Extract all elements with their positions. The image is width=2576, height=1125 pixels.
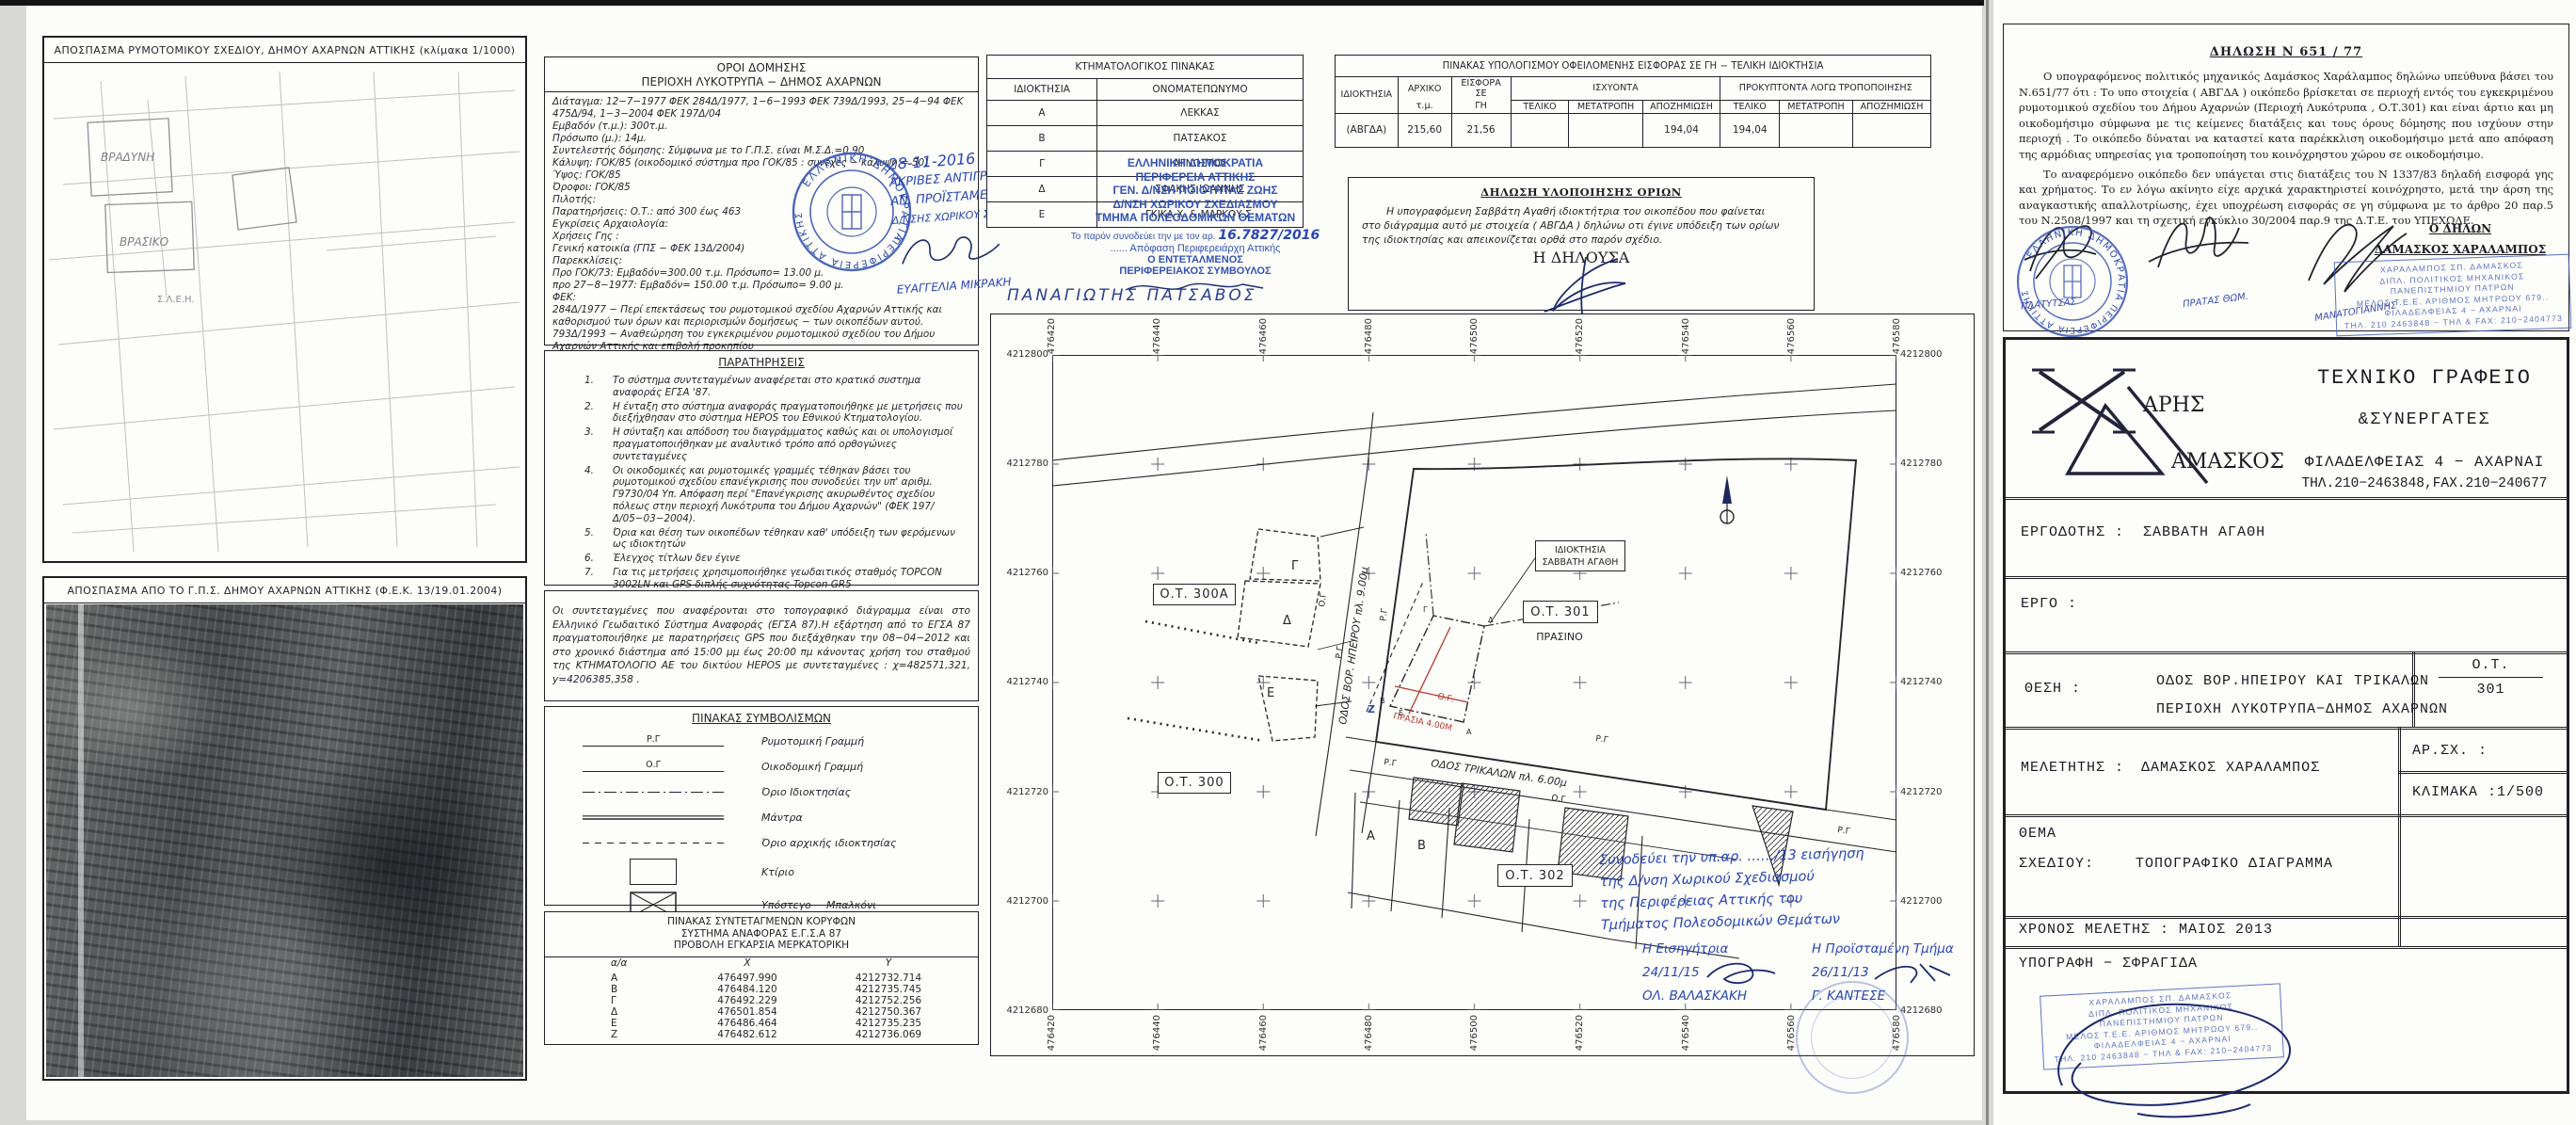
legend-og-tag: Ο.Γ bbox=[646, 760, 661, 770]
note-signature-left: Η Εισηγήτρια 24/11/15 ΟΛ. ΒΑΛΑΣΚΑΚΗ bbox=[1642, 941, 1781, 1004]
legend-label: Υπόστεγο − Μπαλκόνι bbox=[761, 899, 876, 911]
paratirisi-item: 4. Οι οικοδομικές και ρυμοτομικές γραμμέ… bbox=[584, 465, 968, 525]
divider bbox=[2006, 576, 2567, 579]
paratiriseis-box: ΠΑΡΑΤΗΡΗΣΕΙΣ 1. Το σύστημα συντεταγμένων… bbox=[544, 350, 979, 586]
xronos-row: ΧΡΟΝΟΣ ΜΕΛΕΤΗΣ : ΜΑΙΟΣ 2013 bbox=[2019, 922, 2273, 938]
legend-label: Ρυμοτομική Γραμμή bbox=[761, 735, 864, 747]
region-l2: ΠΕΡΙΦΕΡΕΙΑ ΑΤΤΙΚΗΣ bbox=[1049, 170, 1341, 185]
eisfora-h-gi: ΓΗ bbox=[1451, 100, 1511, 113]
oroi-line: 284Δ/1977 − Περί επεκτάσεως του ρυμοτομι… bbox=[552, 304, 972, 329]
dilousa-signature bbox=[1528, 251, 1650, 317]
dilosi-orion-p3: της ιδιοκτησίας και απεικονίζεται ορθά σ… bbox=[1362, 233, 1800, 247]
note-name1: ΟΛ. ΒΑΛΑΣΚΑΚΗ bbox=[1642, 988, 1781, 1004]
thema-label: ΘΕΜΑ bbox=[2019, 826, 2056, 842]
map-excerpt-gps: ΑΠΟΣΠΑΣΜΑ ΑΠΟ ΤΟ Γ.Π.Σ. ΔΗΜΟΥ ΑΧΑΡΝΩΝ ΑΤ… bbox=[42, 576, 527, 1081]
corner-beta: Β bbox=[1380, 697, 1385, 705]
ot300-label: Ο.Τ. 300 bbox=[1158, 772, 1231, 794]
region-l1: ΕΛΛΗΝΙΚΗ ΔΗΜΟΚΡΑΤΙΑ bbox=[1049, 156, 1341, 170]
dilosi-orion-p2: στο διάγραμμα αυτό με στοιχεία ( ΑΒΓΔΑ )… bbox=[1362, 218, 1800, 233]
region-approval-block: ΕΛΛΗΝΙΚΗ ΔΗΜΟΚΡΑΤΙΑ ΠΕΡΙΦΕΡΕΙΑ ΑΤΤΙΚΗΣ Γ… bbox=[1049, 156, 1341, 302]
corner-epsilon: Ε bbox=[1399, 709, 1403, 717]
eisfora-h-apozimiosi1: ΑΠΟΖΗΜΙΩΣΗ bbox=[1642, 100, 1720, 113]
ot301-label: Ο.Τ. 301 bbox=[1523, 601, 1598, 623]
legend-title: ΠΙΝΑΚΑΣ ΣΥΜΒΟΛΙΣΜΩΝ bbox=[545, 712, 978, 725]
rg-label: Ρ.Γ bbox=[1335, 646, 1346, 660]
note-date2: 26/11/13 bbox=[1812, 965, 1869, 980]
gps-note-text: Οι συντεταγμένες που αναφέρονται στο τοπ… bbox=[552, 604, 970, 687]
eisfora-h-arxiko: ΑΡΧΙΚΟ bbox=[1398, 77, 1451, 101]
paratiriseis-list: 1. Το σύστημα συντεταγμένων αναφέρεται σ… bbox=[584, 375, 968, 591]
eisfora-h-metatropi1: ΜΕΤΑΤΡΟΠΗ bbox=[1569, 100, 1642, 113]
office-line1: ΤΕΧΝΙΚΟ ΓΡΑΦΕΙΟ bbox=[2288, 366, 2561, 390]
office-logo: ΑΡΗΣ ΑΜΑΣΚΟΣ bbox=[2023, 359, 2305, 490]
dashed-line-symbol bbox=[583, 843, 724, 844]
paratirisi-item: 2. Η ένταξη στο σύστημα αναφοράς πραγματ… bbox=[584, 401, 968, 426]
region-l4: Δ/ΝΣΗ ΧΩΡΙΚΟΥ ΣΧΕΔΙΑΣΜΟΥ bbox=[1049, 198, 1341, 212]
rymotomiki-line-symbol bbox=[583, 746, 724, 748]
thesi-line2: ΠΕΡΙΟΧΗ ΛΥΚΟΤΡΥΠΑ−ΔΗΜΟΣ ΑΧΑΡΝΩΝ bbox=[2156, 696, 2448, 724]
ypografi-row: ΥΠΟΓΡΑΦΗ − ΣΦΡΑΓΙΔΑ bbox=[2019, 956, 2198, 972]
building-symbol bbox=[630, 859, 677, 885]
rg-label: Ρ.Γ bbox=[1837, 826, 1851, 837]
coords-rows: Α 476497.990 4212732.714 Β 476484.120 42… bbox=[611, 972, 978, 1040]
coords-title2: ΣΥΣΤΗΜΑ ΑΝΑΦΟΡΑΣ Ε.Γ.Σ.Α 87 bbox=[545, 928, 978, 940]
office-line2: &ΣΥΝΕΡΓΑΤΕΣ bbox=[2288, 410, 2561, 429]
owner-label-line2: ΣΑΒΒΑΤΗ ΑΓΑΘΗ bbox=[1536, 556, 1624, 569]
eisfora-h-teliko2: ΤΕΛΙΚΟ bbox=[1720, 100, 1779, 113]
vdivider-arsx bbox=[2398, 771, 2569, 774]
eisfora-h-prokyptonta: ΠΡΟΚΥΠΤΟΝΤΑ ΛΟΓΩ ΤΡΟΠΟΠΟΙΗΣΗΣ bbox=[1720, 77, 1931, 101]
legend-row-orio: Όριο Ιδιοκτησίας bbox=[545, 779, 978, 805]
legend-label: Οικοδομική Γραμμή bbox=[761, 761, 863, 773]
eisfora-h-eisfora: ΕΙΣΦΟΡΑ ΣΕ bbox=[1451, 77, 1511, 101]
gps-note-box: Οι συντεταγμένες που αναφέρονται στο τοπ… bbox=[544, 590, 979, 701]
oroi-subtitle: ΠΕΡΙΟΧΗ ΛΥΚΟΤΡΥΠΑ − ΔΗΜΟΣ ΑΧΑΡΝΩΝ bbox=[545, 75, 978, 89]
plot-handwritten-note: Συνοδεύει την υπ.αρ. ……/13 εισήγηση της … bbox=[1599, 841, 1977, 937]
signature-ellipse bbox=[2024, 972, 2326, 1123]
dashdot-line-symbol bbox=[583, 792, 724, 793]
note-role2: Η Προϊσταμένη Τμήμα bbox=[1812, 941, 1956, 956]
building-1 bbox=[1409, 778, 1464, 826]
eisfora-h-teliko1: ΤΕΛΙΚΟ bbox=[1511, 100, 1569, 113]
arsx-cell: ΑΡ.ΣΧ. : bbox=[2412, 743, 2488, 759]
region-l3: ΓΕΝ. Δ/ΝΣΗ ΠΟΙΟΤΗΤΑΣ ΖΩΗΣ bbox=[1049, 184, 1341, 198]
coords-title1: ΠΙΝΑΚΑΣ ΣΥΝΤΕΤΑΓΜΕΝΩΝ ΚΟΡΥΦΩΝ bbox=[545, 916, 978, 928]
dilosi651-round-stamp: ΕΛΛΗΝΙΚΗ ΔΗΜΟΚΡΑΤΙΑ ΠΕΡΙΦΕΡΕΙΑ ΑΤΤΙΚΗΣ bbox=[2011, 220, 2134, 343]
eisfora-title: ΠΙΝΑΚΑΣ ΥΠΟΛΟΓΙΣΜΟΥ ΟΦΕΙΛΟΜΕΝΗΣ ΕΙΣΦΟΡΑΣ… bbox=[1336, 56, 1931, 77]
legend-row-rg: Ρ.Γ Ρυμοτομική Γραμμή bbox=[545, 729, 978, 754]
meletitis-value: ΔΑΜΑΣΚΟΣ ΧΑΡΑΛΑΜΠΟΣ bbox=[2141, 760, 2320, 776]
owner-label-box: ΙΔΙΟΚΤΗΣΙΑ ΣΑΒΒΑΤΗ ΑΓΑΘΗ bbox=[1535, 540, 1625, 571]
dilosi651-box: ΔΗΛΩΣΗ Ν 651 / 77 Ο υπογραφόμενος πολιτι… bbox=[2003, 24, 2569, 331]
oroi-title: ΟΡΟΙ ΔΟΜΗΣΗΣ bbox=[545, 61, 978, 75]
rg-label: Ρ.Γ bbox=[1384, 758, 1398, 769]
legend-row-og: Ο.Γ Οικοδομική Γραμμή bbox=[545, 754, 978, 779]
coords-row: Γ 476492.229 4212752.256 bbox=[611, 995, 978, 1006]
og-label: Ο.Γ bbox=[1318, 592, 1329, 607]
divider bbox=[2006, 916, 2567, 919]
map1-label-a: ΒΡΑΔΥΝΗ bbox=[101, 151, 154, 164]
legend-label: Μάντρα bbox=[761, 812, 803, 824]
rg-label: Ρ.Γ bbox=[1595, 734, 1609, 746]
ot-cell-label: Ο.Τ. bbox=[2412, 651, 2569, 673]
paratiriseis-title: ΠΑΡΑΤΗΡΗΣΕΙΣ bbox=[545, 356, 978, 369]
copy-note-signature bbox=[892, 223, 1008, 274]
ergo-label: ΕΡΓΟ : bbox=[2021, 596, 2077, 612]
map2-title: ΑΠΟΣΠΑΣΜΑ ΑΠΟ ΤΟ Γ.Π.Σ. ΔΗΜΟΥ ΑΧΑΡΝΩΝ ΑΤ… bbox=[44, 578, 525, 603]
ktima-row: ΑΛΕΚΚΑΣ bbox=[987, 101, 1304, 126]
corner-zeta-blue: Ζ bbox=[1368, 703, 1375, 715]
region-l5: ΤΜΗΜΑ ΠΟΛΕΟΔΟΜΙΚΩΝ ΘΕΜΑΤΩΝ bbox=[1049, 211, 1341, 225]
parcel-letter-gamma: Γ bbox=[1291, 559, 1299, 573]
logo-amaskos: ΑΜΑΣΚΟΣ bbox=[2170, 450, 2284, 474]
dilon-name: ΔΑΜΑΣΚΟΣ ΧΑΡΑΛΑΜΠΟΣ bbox=[2371, 243, 2550, 256]
region-prefix: Το παρόν συνοδεύει την με τον αρ. bbox=[1071, 232, 1216, 242]
legend-row-ktirio: Κτίριο bbox=[545, 856, 978, 888]
coords-header: α/α X Y bbox=[611, 957, 978, 969]
ergo-row: ΕΡΓΟ : bbox=[2021, 596, 2077, 612]
paratirisi-item: 1. Το σύστημα συντεταγμένων αναφέρεται σ… bbox=[584, 375, 968, 399]
building-2 bbox=[1454, 783, 1520, 852]
ergodotis-row: ΕΡΓΟΔΟΤΗΣ : ΣΑΒΒΑΤΗ ΑΓΑΘΗ bbox=[2021, 524, 2265, 540]
region-l6: ...... Απόφαση Περιφερειάρχη Αττικής bbox=[1049, 243, 1341, 254]
thesi-line1: ΟΔΟΣ ΒΟΡ.ΗΠΕΙΡΟΥ ΚΑΙ ΤΡΙΚΑΛΩΝ bbox=[2156, 667, 2448, 696]
legend-row-orio-arxiko: Όριο αρχικής ιδιοκτησίας bbox=[545, 830, 978, 856]
vdivider-right bbox=[2398, 727, 2401, 946]
oroi-line: Πρόσωπο (μ.): 14μ. bbox=[552, 133, 972, 145]
coords-table-box: ΠΙΝΑΚΑΣ ΣΥΝΤΕΤΑΓΜΕΝΩΝ ΚΟΡΥΦΩΝ ΣΥΣΤΗΜΑ ΑΝ… bbox=[544, 911, 979, 1045]
coords-row: Δ 476501.854 4212750.367 bbox=[611, 1006, 978, 1018]
owner-label-line1: ΙΔΙΟΚΤΗΣΙΑ bbox=[1536, 544, 1624, 556]
coords-h-aa: α/α bbox=[611, 957, 677, 969]
legend-label: Κτίριο bbox=[761, 866, 794, 878]
corner-gamma: Γ bbox=[1423, 605, 1428, 614]
legend-row-mantra: Μάντρα bbox=[545, 805, 978, 830]
eisfora-h-isxyonta: ΙΣΧΥΟΝΤΑ bbox=[1511, 77, 1720, 101]
dilon-block: Ο ΔΗΛΩΝ ΔΑΜΑΣΚΟΣ ΧΑΡΑΛΑΜΠΟΣ bbox=[2371, 222, 2550, 256]
map1-label-b: ΒΡΑΣΙΚΟ bbox=[120, 235, 168, 249]
prasino-label: ΠΡΑΣΙΝΟ bbox=[1523, 631, 1596, 643]
corner-delta: Δ bbox=[1488, 616, 1494, 624]
klimaka-cell: ΚΛΙΜΑΚΑ :1/500 bbox=[2412, 784, 2544, 800]
ot-cell-value: 301 bbox=[2412, 678, 2569, 698]
note-date1: 24/11/15 bbox=[1642, 965, 1700, 980]
eisfora-h-tm: τ.μ. bbox=[1398, 100, 1451, 113]
divider bbox=[2006, 497, 2567, 500]
scanned-topographic-sheet: ΑΠΟΣΠΑΣΜΑ ΡΥΜΟΤΟΜΙΚΟΥ ΣΧΕΔΙΟΥ, ΔΗΜΟΥ ΑΧΑ… bbox=[0, 0, 2576, 1125]
note-sig1 bbox=[1700, 956, 1781, 988]
ergodotis-value: ΣΑΒΒΑΤΗ ΑΓΑΘΗ bbox=[2143, 524, 2265, 540]
office-name: ΤΕΧΝΙΚΟ ΓΡΑΦΕΙΟ &ΣΥΝΕΡΓΑΤΕΣ ΦΙΛΑΔΕΛΦΕΙΑΣ… bbox=[2288, 366, 2561, 491]
parcel-letter-epsilon: Ε bbox=[1267, 686, 1274, 700]
sxedio-value: ΤΟΠΟΓΡΑΦΙΚΟ ΔΙΑΓΡΑΜΜΑ bbox=[2136, 856, 2333, 872]
title-block: ΑΡΗΣ ΑΜΑΣΚΟΣ ΤΕΧΝΙΚΟ ΓΡΑΦΕΙΟ &ΣΥΝΕΡΓΑΤΕΣ… bbox=[2003, 337, 2569, 1094]
region-l8: ΠΕΡΙΦΕΡΕΙΑΚΟΣ ΣΥΜΒΟΥΛΟΣ bbox=[1049, 265, 1341, 277]
legend-rg-tag: Ρ.Γ bbox=[647, 734, 660, 745]
divider bbox=[2006, 814, 2567, 817]
ktima-row: ΒΠΑΤΣΑΚΟΣ bbox=[987, 126, 1304, 152]
coords-title3: ΠΡΟΒΟΛΗ ΕΓΚΑΡΣΙΑ ΜΕΡΚΑΤΟΡΙΚΗ bbox=[545, 940, 978, 952]
oroi-line: Εμβαδόν (τ.μ.): 300τ.μ. bbox=[552, 121, 972, 133]
oroi-line: Διάταγμα: 12−7−1977 ΦΕΚ 284Δ/1977, 1−6−1… bbox=[552, 96, 972, 121]
corner-alpha: Α bbox=[1466, 728, 1472, 736]
note-sig2 bbox=[1869, 956, 1956, 988]
ergodotis-label: ΕΡΓΟΔΟΤΗΣ : bbox=[2021, 524, 2124, 540]
meletitis-label: ΜΕΛΕΤΗΤΗΣ : bbox=[2021, 760, 2124, 776]
map2-image bbox=[46, 604, 523, 1077]
rg-label: Ρ.Γ bbox=[1379, 608, 1390, 622]
divider bbox=[2006, 946, 2567, 949]
legend-label: Όριο αρχικής ιδιοκτησίας bbox=[761, 837, 896, 849]
coords-h-x: X bbox=[677, 957, 818, 969]
sxediou-label: ΣΧΕΔΙΟΥ: bbox=[2019, 856, 2094, 872]
note-role1: Η Εισηγήτρια bbox=[1642, 941, 1781, 956]
mantra-line-symbol bbox=[583, 815, 724, 820]
ktima-title: ΚΤΗΜΑΤΟΛΟΓΙΚΟΣ ΠΙΝΑΚΑΣ bbox=[987, 56, 1304, 79]
map1-sketch: ΒΡΑΔΥΝΗ ΒΡΑΣΙΚΟ Σ.Λ.Ε.Η. bbox=[44, 62, 525, 561]
coords-h-y: Y bbox=[818, 957, 959, 969]
paratirisi-item: 3. Η σύνταξη και απόδοση του διαγράμματο… bbox=[584, 426, 968, 462]
parcel-letter-alpha-302: Α bbox=[1367, 829, 1375, 844]
ot-cell: Ο.Τ. 301 bbox=[2412, 651, 2569, 698]
thesi-value: ΟΔΟΣ ΒΟΡ.ΗΠΕΙΡΟΥ ΚΑΙ ΤΡΙΚΑΛΩΝ ΠΕΡΙΟΧΗ ΛΥ… bbox=[2156, 667, 2448, 724]
office-line3: ΦΙΛΑΔΕΛΦΕΙΑΣ 4 − ΑΧΑΡΝΑΙ bbox=[2288, 454, 2561, 471]
legend-box: ΠΙΝΑΚΑΣ ΣΥΜΒΟΛΙΣΜΩΝ Ρ.Γ Ρυμοτομική Γραμμ… bbox=[544, 706, 979, 906]
sxedio-row: ΣΧΕΔΙΟΥ: ΤΟΠΟΓΡΑΦΙΚΟ ΔΙΑΓΡΑΜΜΑ bbox=[2019, 856, 2333, 872]
coords-row: Ε 476486.464 4212735.235 bbox=[611, 1018, 978, 1029]
eisfora-h-metatropi2: ΜΕΤΑΤΡΟΠΗ bbox=[1779, 100, 1852, 113]
eisfora-h-idioktisia: ΙΔΙΟΚΤΗΣΙΑ bbox=[1336, 77, 1399, 114]
region-l7: Ο ΕΝΤΕΤΑΛΜΕΝΟΣ bbox=[1049, 254, 1341, 265]
divider bbox=[2006, 727, 2567, 730]
region-approval-number: 16.7827/2016 bbox=[1218, 228, 1320, 243]
faint-round-stamp bbox=[1796, 981, 1909, 1094]
office-line4: ΤΗΛ.210−2463848,FAX.210−240677 bbox=[2288, 476, 2561, 491]
dilosi-orion-p1: Η υπογραφόμενη Σαββάτη Αγαθή ιδιοκτήτρια… bbox=[1362, 204, 1800, 218]
engineer-stamp: ΧΑΡΑΛΑΜΠΟΣ ΣΠ. ΔΑΜΑΣΚΟΣ ΔΙΠΛ. ΠΟΛΙΤΙΚΟΣ … bbox=[2334, 254, 2572, 337]
eisfora-data-row: (ΑΒΓΔΑ) 215,60 21,56 194,04 194,04 bbox=[1336, 113, 1931, 147]
paratirisi-item: 7. Για τις μετρήσεις χρησιμοποιήθηκε γεω… bbox=[584, 567, 968, 591]
map1-title: ΑΠΟΣΠΑΣΜΑ ΡΥΜΟΤΟΜΙΚΟΥ ΣΧΕΔΙΟΥ, ΔΗΜΟΥ ΑΧΑ… bbox=[44, 38, 525, 63]
logo-aris: ΑΡΗΣ bbox=[2142, 394, 2204, 417]
patsavos-handwritten-name: ΠΑΝΑΓΙΩΤΗΣ ΠΑΤΣΑΒΟΣ bbox=[1007, 286, 1257, 305]
parcel-letter-beta-302: Β bbox=[1417, 839, 1426, 853]
sheet-fold-line bbox=[1986, 0, 1989, 1125]
parcel-letter-delta: Δ bbox=[1283, 614, 1291, 628]
scan-edge-top bbox=[0, 0, 1984, 6]
coords-row: Β 476484.120 4212735.745 bbox=[611, 984, 978, 995]
oikodomiki-line-symbol bbox=[583, 771, 724, 774]
og-label: Ο.Γ bbox=[1551, 794, 1566, 805]
dilosi651-p1: Ο υπογραφόμενος πολιτικός μηχανικός Δαμά… bbox=[2019, 69, 2553, 163]
dilon-role: Ο ΔΗΛΩΝ bbox=[2371, 222, 2550, 235]
coords-row: Α 476497.990 4212732.714 bbox=[611, 972, 978, 984]
dilosi-orion-title: ΔΗΛΩΣΗ ΥΛΟΠΟΙΗΣΗΣ ΟΡΙΩΝ bbox=[1349, 185, 1814, 199]
ot300a-label: Ο.Τ. 300Α bbox=[1153, 584, 1236, 605]
eisfora-h-apozimiosi2: ΑΠΟΖΗΜΙΩΣΗ bbox=[1853, 100, 1931, 113]
coords-row: Ζ 476482.612 4212736.069 bbox=[611, 1029, 978, 1040]
dilosi-orion-box: ΔΗΛΩΣΗ ΥΛΟΠΟΙΗΣΗΣ ΟΡΙΩΝ Η υπογραφόμενη Σ… bbox=[1348, 177, 1815, 311]
eisfora-table: ΠΙΝΑΚΑΣ ΥΠΟΛΟΓΙΣΜΟΥ ΟΦΕΙΛΟΜΕΝΗΣ ΕΙΣΦΟΡΑΣ… bbox=[1335, 55, 1931, 148]
ot302-label: Ο.Τ. 302 bbox=[1497, 864, 1573, 887]
map1-label-c: Σ.Λ.Ε.Η. bbox=[157, 295, 195, 305]
ktima-col-idioktisia: ΙΔΙΟΚΤΗΣΙΑ bbox=[987, 79, 1097, 101]
map-excerpt-rymotomiko: ΑΠΟΣΠΑΣΜΑ ΡΥΜΟΤΟΜΙΚΟΥ ΣΧΕΔΙΟΥ, ΔΗΜΟΥ ΑΧΑ… bbox=[42, 36, 527, 563]
ktima-col-onoma: ΟΝΟΜΑΤΕΠΩΝΥΜΟ bbox=[1097, 79, 1304, 101]
meletitis-row: ΜΕΛΕΤΗΤΗΣ : ΔΑΜΑΣΚΟΣ ΧΑΡΑΛΑΜΠΟΣ bbox=[2021, 760, 2320, 776]
dilosi651-title: ΔΗΛΩΣΗ Ν 651 / 77 bbox=[2004, 45, 2568, 59]
legend-label: Όριο Ιδιοκτησίας bbox=[761, 786, 851, 798]
thesi-label: ΘΕΣΗ : bbox=[2024, 681, 2081, 697]
paratirisi-item: 6. Έλεγχος τίτλων δεν έγινε bbox=[584, 553, 968, 565]
paratirisi-item: 5. Όρια και θέση των οικοπέδων τέθηκαν κ… bbox=[584, 527, 968, 552]
